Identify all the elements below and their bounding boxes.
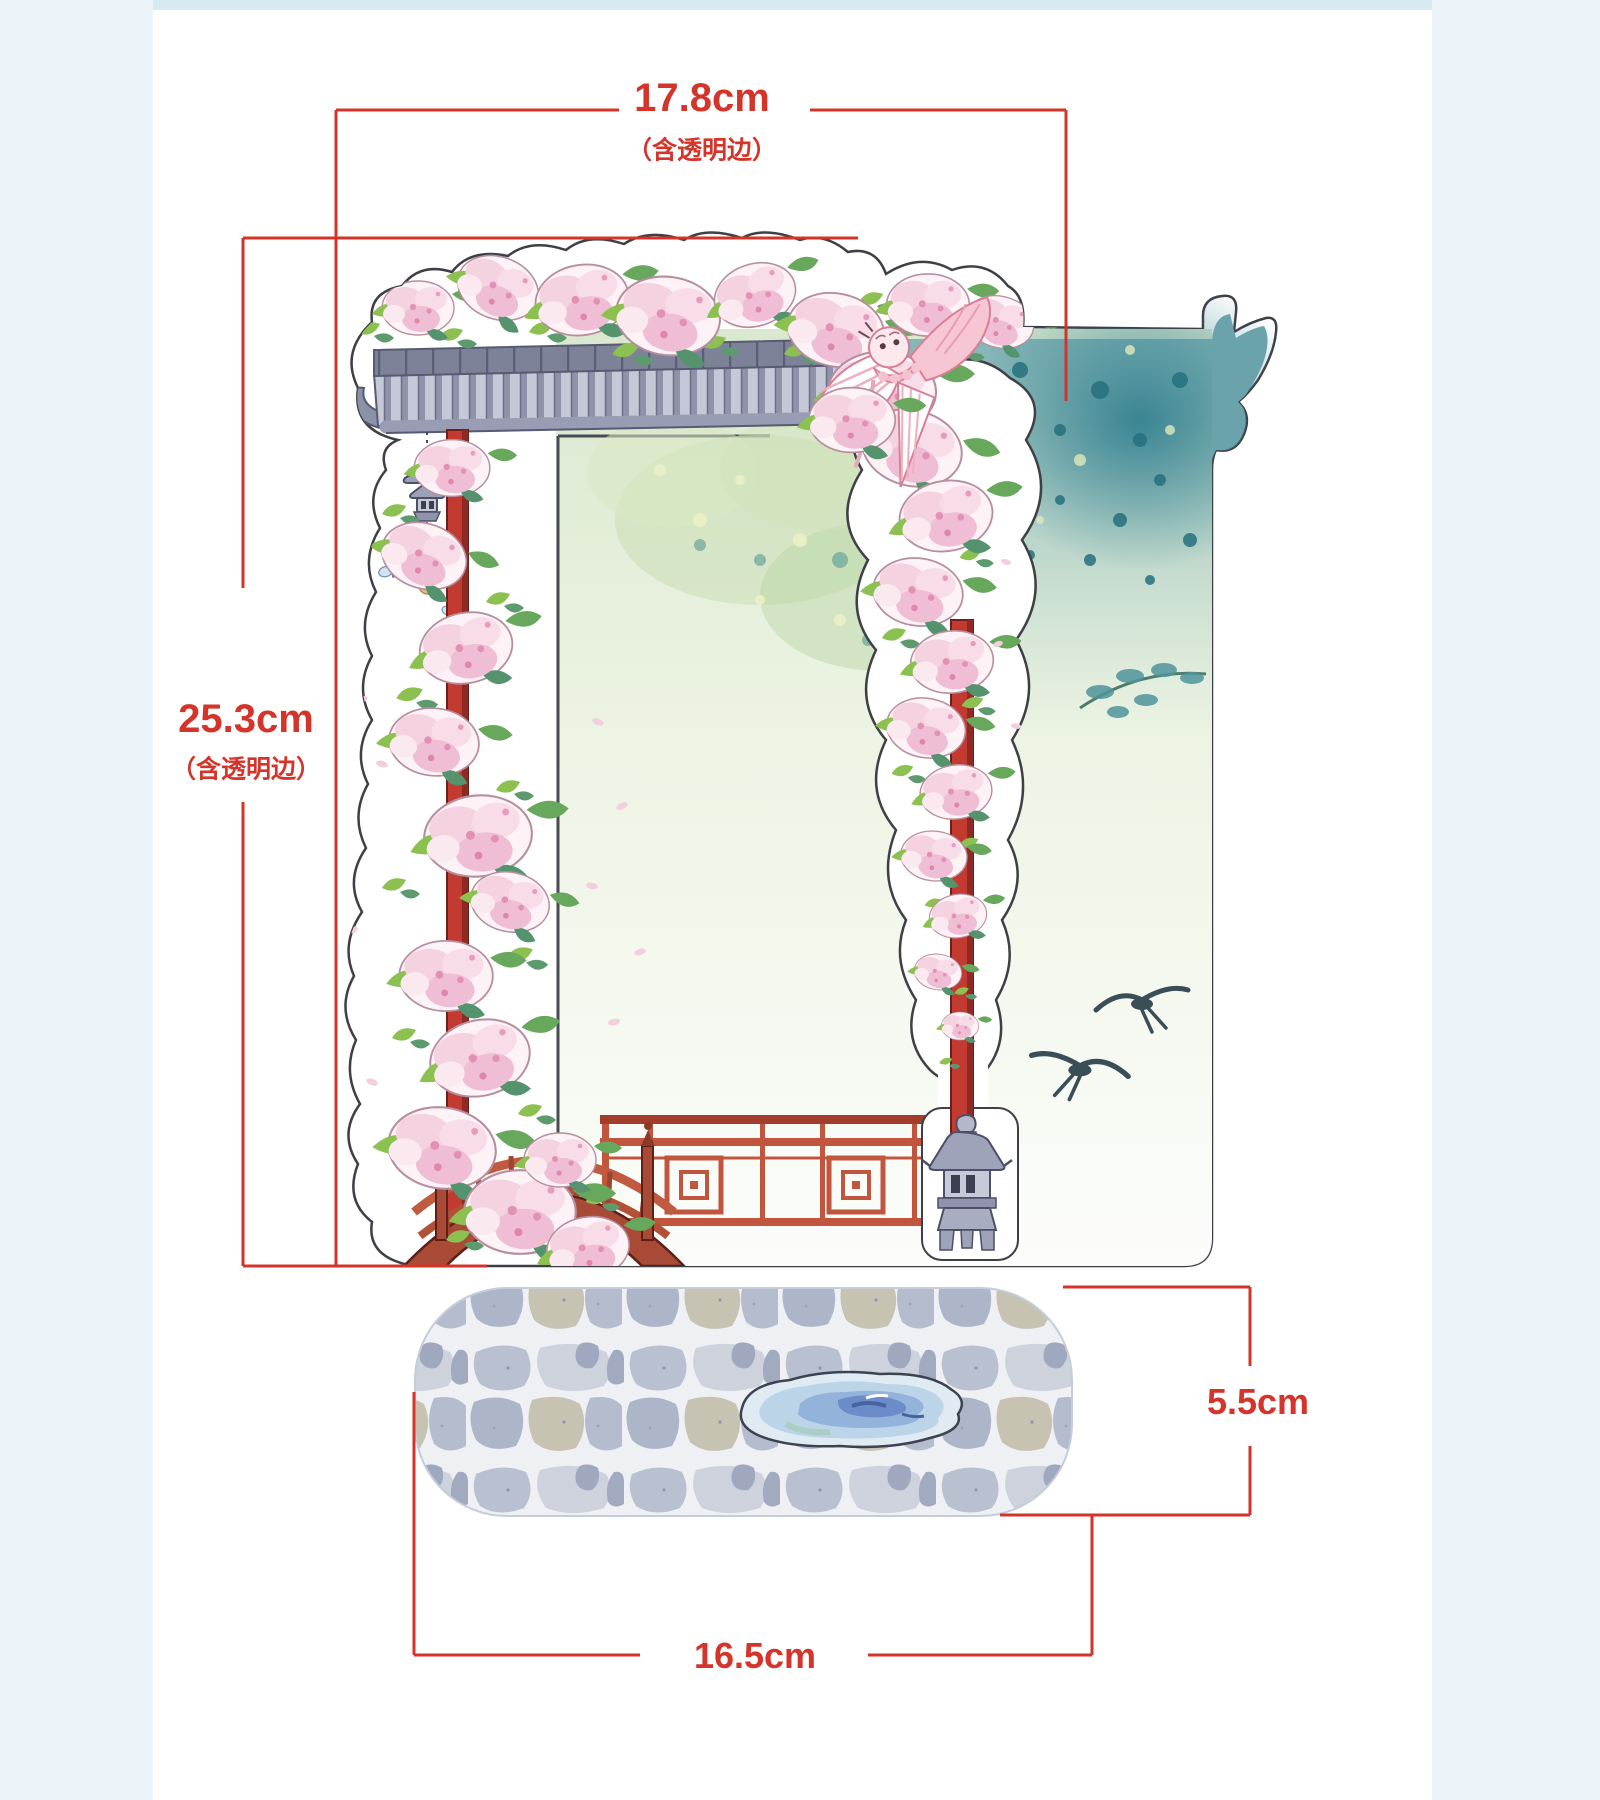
dimension-top-value: 17.8cm bbox=[634, 78, 770, 118]
dimension-right-value: 5.5cm bbox=[1207, 1384, 1309, 1420]
cobblestone-base bbox=[415, 1288, 1072, 1516]
dimension-top-note: （含透明边） bbox=[627, 139, 777, 164]
roof-corner-silhouette bbox=[1212, 314, 1268, 462]
water-puddle bbox=[741, 1372, 962, 1447]
product-dimension-illustration bbox=[0, 0, 1600, 1800]
dimension-left-note: （含透明边） bbox=[171, 758, 321, 783]
product-dimension-page: 17.8cm （含透明边） 25.3cm （含透明边） 5.5cm 16.5cm bbox=[0, 0, 1600, 1800]
dimension-bottom-value: 16.5cm bbox=[694, 1638, 816, 1674]
dimension-left-value: 25.3cm bbox=[178, 699, 314, 739]
diecut-sheet bbox=[345, 232, 1315, 1294]
